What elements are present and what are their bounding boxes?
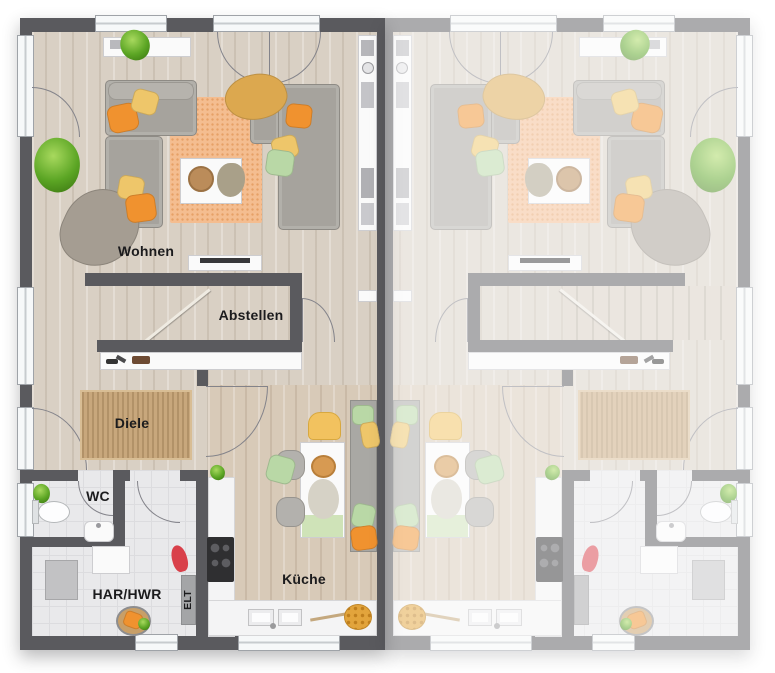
cooktop <box>536 537 563 582</box>
unit-left: Wohnen Abstellen Diele WC HAR/HWR ELT Kü… <box>20 18 385 650</box>
shelf-books-2 <box>361 82 374 108</box>
wall-party <box>377 18 385 650</box>
unit-right <box>385 18 750 650</box>
toilet-tank <box>731 500 738 524</box>
pillow-orange-2 <box>612 192 646 224</box>
label-har-hwr: HAR/HWR <box>92 587 161 601</box>
toilet <box>700 501 732 523</box>
wall-har-north <box>572 470 590 481</box>
clock-icon <box>362 62 374 74</box>
sink-basin-2 <box>468 609 492 626</box>
label-abstellen: Abstellen <box>219 308 284 322</box>
clock-icon <box>396 62 408 74</box>
label-wohnen: Wohnen <box>118 244 174 258</box>
wallet-icon <box>132 356 150 364</box>
wall-wc-north-left <box>32 470 78 481</box>
cooktop <box>207 537 234 582</box>
flower-bouquet <box>431 479 462 519</box>
wall-top <box>385 18 750 32</box>
entry-door <box>736 407 753 470</box>
faucet-icon-wc <box>96 523 101 528</box>
faucet-icon-kitchen <box>270 623 276 629</box>
shelf-books-4 <box>396 203 409 225</box>
wall-top <box>20 18 385 32</box>
wall-stub-abstellen <box>468 286 480 343</box>
faucet-icon-kitchen <box>494 623 500 629</box>
utility-cabinet <box>45 560 78 600</box>
wall-living-south <box>85 273 302 286</box>
label-elt: ELT <box>183 590 194 610</box>
table-plant <box>525 163 553 197</box>
serving-tray <box>556 166 582 192</box>
label-wc: WC <box>86 489 110 503</box>
wall-living-south <box>468 273 685 286</box>
window-patio-door <box>450 15 557 32</box>
rug-hall <box>578 390 690 460</box>
utility-table <box>640 546 678 574</box>
serving-tray <box>188 166 214 192</box>
radiator <box>393 290 412 302</box>
radiator <box>358 290 377 302</box>
label-diele: Diele <box>115 416 149 430</box>
shelf-books-1 <box>361 40 374 56</box>
tv-icon <box>200 258 250 263</box>
pillow-bench-orange <box>349 524 378 551</box>
fruit-bowl <box>344 604 372 630</box>
chair-gray-2 <box>276 497 305 527</box>
pillow-green-1 <box>474 148 505 178</box>
faucet-icon-wc <box>669 523 674 528</box>
label-kueche: Küche <box>282 572 326 586</box>
shelf-books-1 <box>396 40 409 56</box>
window-har <box>135 634 178 651</box>
sunglasses-icon <box>652 359 664 364</box>
wall-wc-east <box>113 470 125 547</box>
window-patio-door <box>213 15 320 32</box>
plate-decor <box>434 455 459 478</box>
chair-gray-2 <box>465 497 494 527</box>
fruit-bowl <box>398 604 426 630</box>
hall-console <box>100 352 302 370</box>
pillow-bench-orange <box>391 524 420 551</box>
pillow-green-1 <box>264 148 295 178</box>
shelf-books-2 <box>396 82 409 108</box>
sink-basin-2 <box>278 609 302 626</box>
plate-decor <box>311 455 336 478</box>
shelf-books-3 <box>396 168 409 198</box>
tv-icon <box>520 258 570 263</box>
floorplan: Wohnen Abstellen Diele WC HAR/HWR ELT Kü… <box>0 0 775 673</box>
pillow-orange-3 <box>285 103 313 130</box>
pillow-orange-3 <box>457 103 485 130</box>
window-left-stair <box>17 287 34 385</box>
utility-cabinet <box>692 560 725 600</box>
window-wc <box>736 483 753 537</box>
shelf-books-4 <box>361 203 374 225</box>
wall-abstellen-south <box>468 340 673 352</box>
window-kitchen <box>430 634 532 651</box>
window-left-stair <box>736 287 753 385</box>
elt-panel <box>574 575 589 625</box>
chair-yellow <box>429 412 462 440</box>
utility-table <box>92 546 130 574</box>
sink-basin-1 <box>496 609 522 626</box>
window-left-terrace <box>736 35 753 137</box>
window-har <box>592 634 635 651</box>
wall-party <box>385 18 393 650</box>
wall-har-kitchen <box>562 470 574 636</box>
hall-console <box>468 352 670 370</box>
toilet <box>38 501 70 523</box>
shelf-books-3 <box>361 168 374 198</box>
wall-wc-north-left <box>692 470 738 481</box>
chair-yellow <box>308 412 341 440</box>
sunglasses-icon <box>106 359 118 364</box>
window-kitchen <box>238 634 340 651</box>
pillow-orange-2 <box>124 192 158 224</box>
flower-bouquet <box>308 479 339 519</box>
wallet-icon <box>620 356 638 364</box>
wall-abstellen-south <box>97 340 302 352</box>
wall-stub-abstellen <box>290 286 302 343</box>
